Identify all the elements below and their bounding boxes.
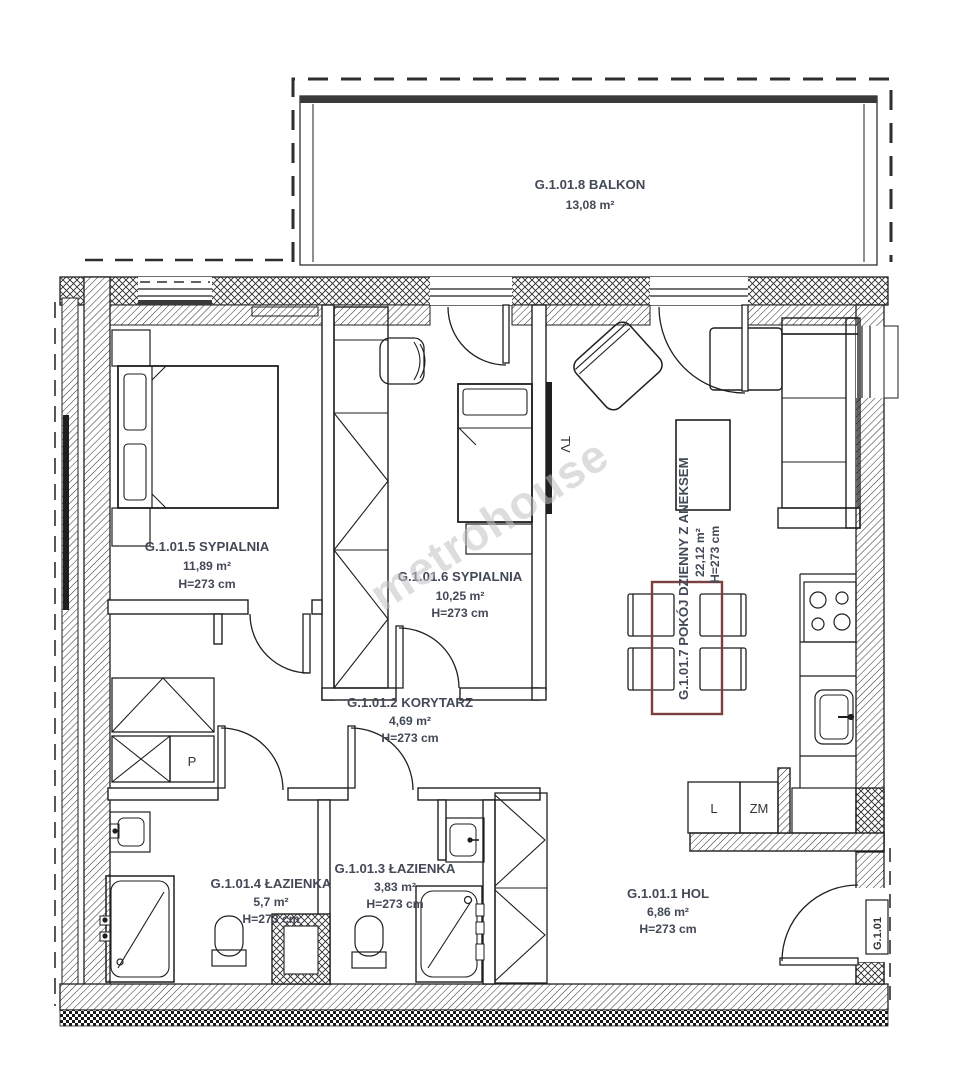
corridor-area: 4,69 m² bbox=[389, 714, 431, 728]
wall-stub bbox=[532, 688, 546, 700]
wall-bath3-hol bbox=[483, 800, 495, 984]
closet-wall bbox=[214, 614, 222, 644]
bedroom6-balcony-door-arc bbox=[448, 307, 506, 365]
toilet bbox=[355, 916, 383, 956]
living-room-height: H=273 cm bbox=[708, 526, 722, 583]
bathroom3-door-leaf bbox=[348, 726, 355, 788]
balcony-area: 13,08 m² bbox=[566, 198, 615, 212]
wall-bath3-top bbox=[418, 788, 540, 800]
corner-sofa bbox=[710, 318, 860, 528]
bathroom3-name: G.1.01.3 ŁAZIENKA bbox=[335, 861, 456, 876]
corridor-name: G.1.01.2 KORYTARZ bbox=[347, 695, 473, 710]
bottom-wall bbox=[60, 984, 888, 1010]
right-window-sill bbox=[884, 326, 898, 398]
hall-area: 6,86 m² bbox=[647, 905, 689, 919]
wall-basin-stub bbox=[438, 800, 446, 860]
floor-plan-drawing: G.1.01.8 BALKON 13,08 m² G.1.01.5 SYPIAL… bbox=[0, 0, 965, 1080]
bathroom4-area: 5,7 m² bbox=[253, 895, 288, 909]
right-wall-block bbox=[856, 962, 884, 984]
bathroom3-height: H=273 cm bbox=[366, 897, 423, 911]
double-bed bbox=[118, 366, 278, 508]
blanket-fold bbox=[459, 428, 476, 445]
bedroom6-door-arc bbox=[399, 628, 459, 688]
counter-cabinet bbox=[792, 788, 856, 833]
fridge-label: L bbox=[710, 801, 717, 816]
balcony-name: G.1.01.8 BALKON bbox=[535, 177, 646, 192]
desk-chair bbox=[380, 338, 425, 384]
wall-kitchen-stub bbox=[778, 768, 790, 833]
bedroom5-height: H=273 cm bbox=[178, 577, 235, 591]
floor-plan: G.1.01.8 BALKON 13,08 m² G.1.01.5 SYPIAL… bbox=[0, 0, 965, 1080]
pillow bbox=[463, 389, 527, 415]
wall-bath-top bbox=[288, 788, 348, 800]
bedroom5-name: G.1.01.5 SYPIALNIA bbox=[145, 539, 270, 554]
wall-jamb bbox=[312, 600, 322, 614]
bedroom6-area: 10,25 m² bbox=[436, 589, 485, 603]
hall-height: H=273 cm bbox=[639, 922, 696, 936]
left-outer-strip bbox=[62, 298, 78, 1010]
hob bbox=[804, 582, 856, 642]
living-balcony-door-leaf bbox=[742, 305, 748, 391]
bedroom6-balcony-door-opening bbox=[430, 277, 512, 305]
entrance-door-leaf bbox=[780, 958, 858, 965]
cabinet-door-mark bbox=[112, 678, 214, 732]
bathroom3-area: 3,83 m² bbox=[374, 880, 416, 894]
bathroom4-height: H=273 cm bbox=[242, 912, 299, 926]
hall-name: G.1.01.1 HOL bbox=[627, 886, 709, 901]
dishwasher-label: ZM bbox=[750, 801, 769, 816]
bedroom5-area: 11,89 m² bbox=[183, 559, 231, 573]
bedroom6-height: H=273 cm bbox=[431, 606, 488, 620]
armchair bbox=[570, 318, 666, 414]
bathroom4-door-leaf bbox=[218, 726, 225, 788]
bedroom5-door-arc bbox=[250, 614, 309, 673]
kitchen-counter bbox=[800, 574, 856, 788]
watermark: metrohouse bbox=[360, 428, 618, 620]
living-balcony-door-arc bbox=[659, 307, 745, 393]
windows bbox=[138, 277, 898, 962]
unit-tag: G.1.01 bbox=[866, 900, 888, 954]
wall-bedroom5-bedroom6 bbox=[322, 305, 334, 700]
left-strip-dark-segment bbox=[63, 415, 69, 610]
corridor-height: H=273 cm bbox=[381, 731, 438, 745]
toilet-tank bbox=[212, 950, 246, 966]
bathroom4-door-arc bbox=[221, 728, 283, 790]
entrance-door-arc bbox=[782, 885, 858, 961]
balcony bbox=[85, 79, 891, 265]
unit-tag-label: G.1.01 bbox=[872, 917, 884, 950]
cabinet-door-mark bbox=[112, 736, 170, 782]
bathroom4-fixtures bbox=[100, 812, 246, 982]
duct-shaft-inner bbox=[284, 926, 318, 974]
top-wall-inner-strip bbox=[110, 305, 430, 325]
top-wall-inner-strip bbox=[748, 305, 856, 325]
hall-wardrobe bbox=[495, 793, 547, 983]
bedroom5-door-leaf bbox=[303, 614, 310, 673]
living-room-area: 22,12 m² bbox=[693, 528, 707, 577]
bedroom6-door-leaf bbox=[396, 626, 403, 688]
toilet-tank bbox=[352, 952, 386, 968]
bottom-dense-strip bbox=[60, 1010, 888, 1026]
storage-cabinet bbox=[112, 678, 214, 732]
nightstand bbox=[112, 330, 150, 366]
balcony-edge-band bbox=[300, 96, 877, 103]
living-balcony-door-opening bbox=[650, 277, 748, 305]
wall-bath4-top bbox=[108, 788, 218, 800]
pillow bbox=[124, 374, 146, 430]
living-room-name: G.1.01.7 POKÓJ DZIENNY Z ANEKSEM bbox=[676, 457, 691, 700]
window-sill-band bbox=[138, 300, 212, 305]
wall-bedroom5-corridor bbox=[108, 600, 248, 614]
pillow bbox=[124, 444, 146, 500]
wall-kitchen-hol bbox=[690, 833, 884, 851]
bathroom4-name: G.1.01.4 ŁAZIENKA bbox=[211, 876, 332, 891]
blanket-fold bbox=[152, 366, 166, 508]
washer-label: P bbox=[188, 754, 197, 769]
bedroom6-balcony-door-leaf bbox=[503, 305, 509, 363]
